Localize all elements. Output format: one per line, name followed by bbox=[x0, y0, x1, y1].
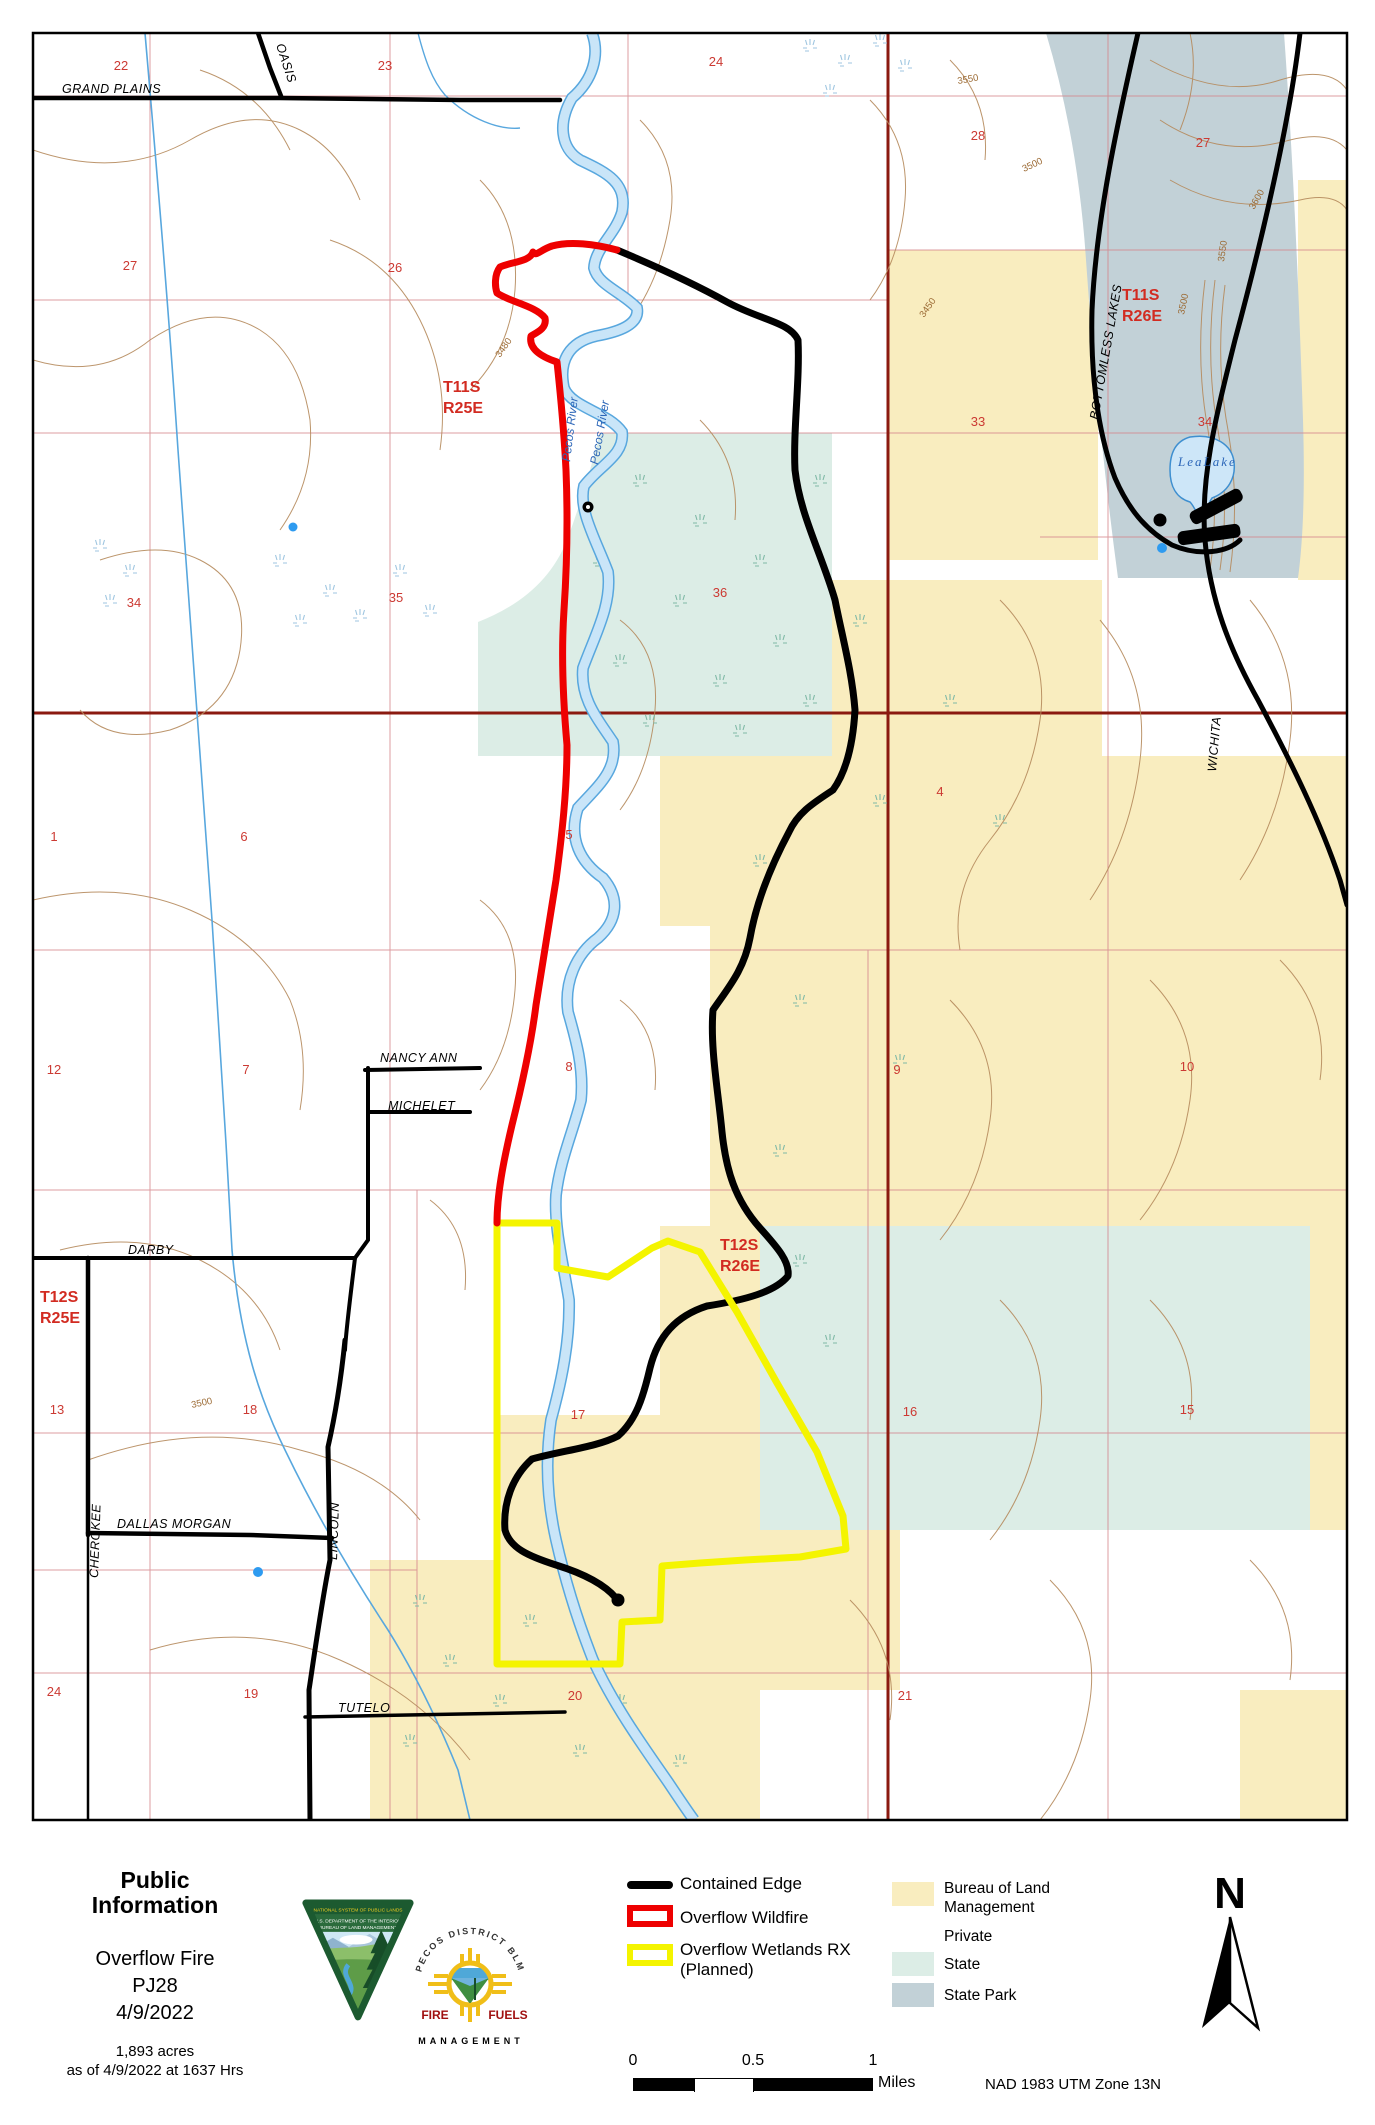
section-number: 8 bbox=[565, 1059, 572, 1074]
scale-tick-1: 1 bbox=[869, 2052, 878, 2070]
scale-unit-label: Miles bbox=[878, 2074, 915, 2092]
legend-rx-label1: Overflow Wetlands RX bbox=[680, 1940, 851, 1960]
section-number: 27 bbox=[123, 258, 137, 273]
overflow-wildfire-swatch bbox=[627, 1905, 673, 1927]
road-label: LINCOLN bbox=[326, 1501, 342, 1560]
section-number: 24 bbox=[709, 54, 723, 69]
section-number: 12 bbox=[47, 1062, 61, 1077]
fire-date: 4/9/2022 bbox=[30, 2001, 280, 2026]
section-number: 23 bbox=[378, 58, 392, 73]
contained-edge-swatch bbox=[627, 1881, 673, 1889]
fire-code: PJ28 bbox=[30, 1974, 280, 1999]
section-number: 36 bbox=[713, 585, 727, 600]
section-number: 10 bbox=[1180, 1059, 1194, 1074]
fire-map-page: 22 23 24 28 27 27 26 33 34 35 36 34 4 1 … bbox=[0, 0, 1375, 2125]
contained-edge-end bbox=[612, 1594, 625, 1607]
fire-as-of: as of 4/9/2022 at 1637 Hrs bbox=[30, 2061, 280, 2081]
road-label: GRAND PLAINS bbox=[62, 82, 161, 96]
section-number: 16 bbox=[903, 1404, 917, 1419]
road-label: DALLAS MORGAN bbox=[117, 1517, 232, 1531]
scale-tick-0: 0 bbox=[629, 2052, 638, 2070]
township-r: R25E bbox=[443, 400, 483, 417]
section-number: 22 bbox=[114, 58, 128, 73]
legend-wildfire-label: Overflow Wildfire bbox=[680, 1908, 808, 1928]
pecos-logo-fuels: FUELS bbox=[488, 2008, 527, 2022]
map-title-line2: Information bbox=[30, 1893, 280, 1918]
section-number: 20 bbox=[568, 1688, 582, 1703]
township-t: T11S bbox=[443, 379, 481, 396]
section-number: 1 bbox=[50, 829, 57, 844]
road-label: DARBY bbox=[128, 1243, 175, 1257]
pecos-logo-management: MANAGEMENT bbox=[418, 2036, 524, 2046]
ownership-state-park-label: State Park bbox=[944, 1987, 1016, 2005]
section-number: 19 bbox=[244, 1686, 258, 1701]
section-number: 15 bbox=[1180, 1402, 1194, 1417]
section-number: 33 bbox=[971, 414, 985, 429]
blm-logo-band1: NATIONAL SYSTEM OF PUBLIC LANDS bbox=[313, 1908, 402, 1914]
section-number: 28 bbox=[971, 128, 985, 143]
township-r: R25E bbox=[40, 1310, 80, 1327]
title-block: Public Information Overflow Fire PJ28 4/… bbox=[30, 1868, 280, 2081]
map-title-line1: Public bbox=[30, 1868, 280, 1893]
section-number: 21 bbox=[898, 1688, 912, 1703]
ownership-state-label: State bbox=[944, 1956, 980, 1974]
blm-logo-band3: BUREAU OF LAND MANAGEMENT bbox=[319, 1925, 397, 1931]
section-number: 7 bbox=[242, 1062, 249, 1077]
road-label: TUTELO bbox=[338, 1701, 390, 1715]
township-r: R26E bbox=[1122, 308, 1162, 325]
section-number: 6 bbox=[240, 829, 247, 844]
legend-rx-label2: (Planned) bbox=[680, 1960, 754, 1980]
township-t: T11S bbox=[1122, 287, 1160, 304]
overflow-rx-swatch bbox=[627, 1944, 673, 1966]
scale-tick-05: 0.5 bbox=[742, 2052, 764, 2070]
section-number: 4 bbox=[936, 784, 943, 799]
north-arrow-label: N bbox=[1214, 1869, 1246, 1918]
section-number: 34 bbox=[127, 595, 141, 610]
pecos-logo-fire: FIRE bbox=[421, 2008, 448, 2022]
blm-swatch bbox=[892, 1882, 934, 1906]
township-t: T12S bbox=[40, 1289, 79, 1306]
section-number: 17 bbox=[571, 1407, 585, 1422]
section-number: 13 bbox=[50, 1402, 64, 1417]
pecos-logo: PECOS DISTRICT BLM FIRE FUELS MANAGEMENT bbox=[405, 1912, 535, 2052]
spring-dot bbox=[253, 1567, 263, 1577]
datum-label: NAD 1983 UTM Zone 13N bbox=[985, 2076, 1161, 2093]
fire-acres: 1,893 acres bbox=[30, 2042, 280, 2062]
map-canvas: 22 23 24 28 27 27 26 33 34 35 36 34 4 1 … bbox=[0, 0, 1375, 2125]
ownership-private-label: Private bbox=[944, 1928, 992, 1946]
section-number: 26 bbox=[388, 260, 402, 275]
legend-contained-label: Contained Edge bbox=[680, 1874, 802, 1894]
blm-logo-band2: U.S. DEPARTMENT OF THE INTERIOR bbox=[315, 1918, 402, 1924]
blm-logo: NATIONAL SYSTEM OF PUBLIC LANDS U.S. DEP… bbox=[300, 1893, 416, 2025]
ownership-blm-label2: Management bbox=[944, 1899, 1034, 1917]
section-number: 18 bbox=[243, 1402, 257, 1417]
township-r: R26E bbox=[720, 1258, 760, 1275]
spring-dot bbox=[289, 523, 298, 532]
road-label: NANCY ANN bbox=[380, 1051, 458, 1065]
state-park-swatch bbox=[892, 1983, 934, 2007]
section-number: 27 bbox=[1196, 135, 1210, 150]
scale-bar bbox=[633, 2078, 873, 2091]
section-number: 9 bbox=[893, 1062, 900, 1077]
state-swatch bbox=[892, 1952, 934, 1976]
lake-label: LeaLake bbox=[1177, 454, 1237, 469]
north-arrow: N bbox=[1202, 1869, 1258, 2028]
road-label: CHEROKEE bbox=[87, 1503, 104, 1578]
fire-name: Overflow Fire bbox=[30, 1947, 280, 1972]
road-label: MICHELET bbox=[388, 1099, 456, 1113]
township-t: T12S bbox=[720, 1237, 759, 1254]
section-number: 35 bbox=[389, 590, 403, 605]
section-number: 24 bbox=[47, 1684, 61, 1699]
spring-dot bbox=[1157, 543, 1167, 553]
section-number: 5 bbox=[565, 827, 572, 842]
section-number: 34 bbox=[1198, 414, 1212, 429]
ownership-blm-label1: Bureau of Land bbox=[944, 1880, 1050, 1898]
